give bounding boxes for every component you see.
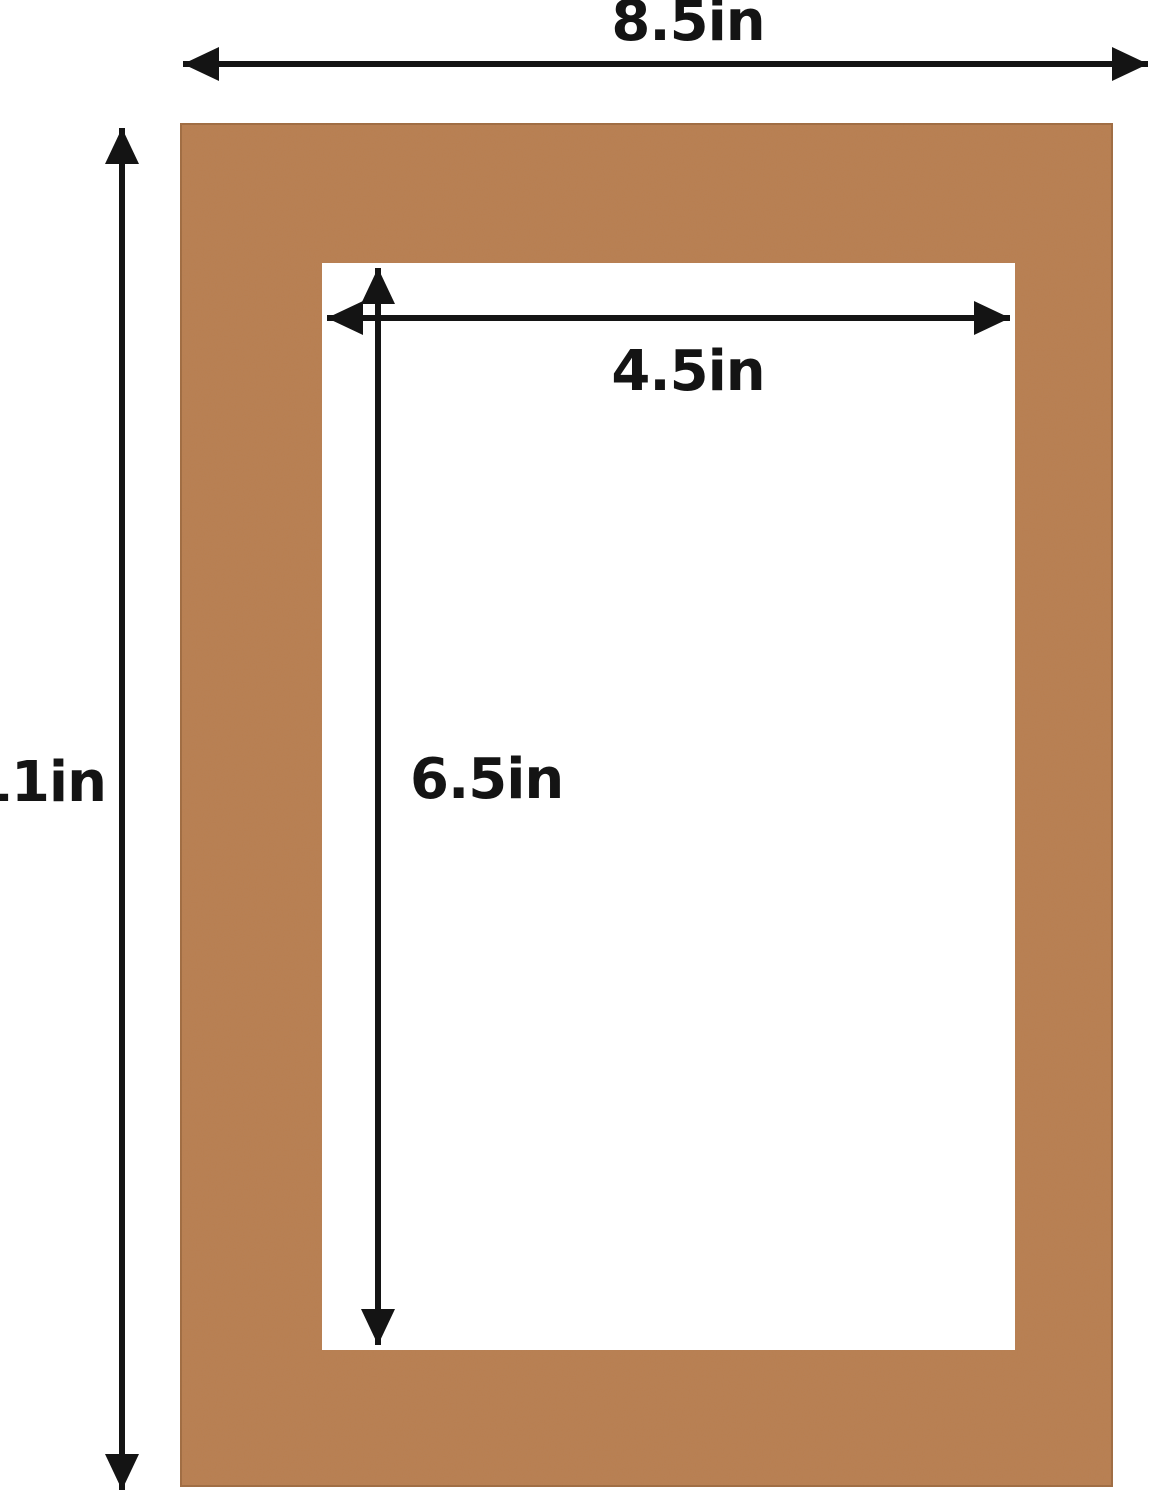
mat-board	[180, 123, 1113, 1487]
opening-height-label: 6.5in	[410, 752, 563, 808]
opening-width-label: 4.5in	[611, 344, 764, 400]
outer-height-label: 11in	[0, 755, 106, 811]
outer-width-label: 8.5in	[611, 0, 764, 50]
mat-dimension-diagram	[0, 0, 1158, 1500]
diagram-canvas: 8.5in 11in 4.5in 6.5in	[0, 0, 1158, 1500]
